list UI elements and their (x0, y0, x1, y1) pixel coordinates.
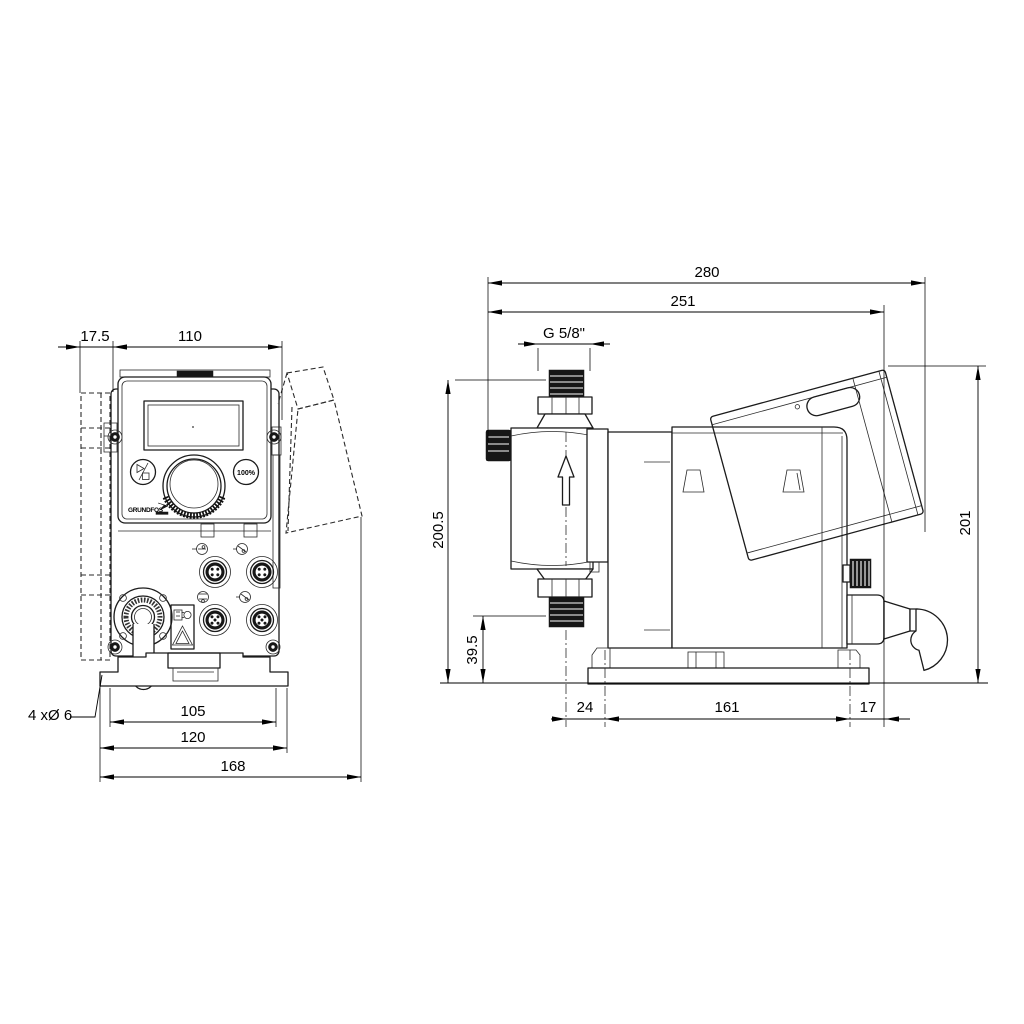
dosing-head (486, 370, 593, 627)
svg-text:251: 251 (670, 293, 695, 310)
svg-text:110: 110 (178, 328, 202, 345)
cover-handle-slot (805, 385, 862, 417)
mounting-plate-front (100, 653, 288, 686)
dim-total-width-168: 168 (100, 758, 361, 780)
motor-section (608, 432, 672, 648)
svg-text:G 5/8": G 5/8" (543, 325, 585, 342)
svg-text:120: 120 (180, 729, 205, 746)
dim-body-depth-251: 251 (488, 293, 884, 315)
dim-width-110: 110 (178, 328, 282, 350)
side-view (486, 370, 948, 684)
dim-rear-offset-17: 17 (860, 699, 877, 716)
wall-mounting-plate (81, 393, 110, 660)
dim-cover-height-201: 201 (957, 366, 981, 683)
pump-body-side (587, 427, 948, 670)
label-mounting-holes: 4 xØ 6 (28, 675, 102, 724)
dim-suction-height-39-5: 39.5 (464, 616, 486, 683)
dimensional-drawing: 100% GRUNDFOS (0, 0, 1024, 1024)
dim-thread-g58: G 5/8" (518, 325, 610, 347)
svg-text:201: 201 (957, 510, 974, 535)
main-housing (672, 427, 847, 648)
dim-plate-width-120: 120 (100, 729, 287, 751)
dosing-head-body (511, 428, 593, 569)
dim-hole-spacing-161: 161 (714, 699, 739, 716)
suction-valve (537, 569, 593, 627)
power-cable (847, 595, 948, 670)
front-view: 100% GRUNDFOS (81, 367, 362, 690)
svg-text:168: 168 (220, 758, 245, 775)
dim-hole-spacing-105: 105 (110, 703, 276, 725)
cover-flipped-front (278, 367, 362, 533)
capacity-button-label: 100% (237, 470, 256, 477)
svg-text:17.5: 17.5 (80, 328, 109, 345)
svg-text:39.5: 39.5 (464, 635, 481, 664)
dim-total-depth-280: 280 (488, 264, 925, 286)
vent-valve-knob[interactable] (486, 430, 511, 461)
svg-text:105: 105 (180, 703, 205, 720)
svg-text:200.5: 200.5 (430, 511, 447, 549)
panel-top-tab (177, 371, 213, 377)
discharge-valve (537, 370, 593, 428)
control-panel: 100% GRUNDFOS (118, 370, 271, 523)
base-plate (588, 648, 869, 684)
dim-front-offset-24: 24 (577, 699, 594, 716)
dim-height-200-5: 200.5 (430, 380, 451, 683)
dim-offset-17-5: 17.5 (58, 328, 282, 350)
svg-text:4 xØ 6: 4 xØ 6 (28, 707, 72, 724)
svg-text:280: 280 (694, 264, 719, 281)
head-adapter (587, 429, 608, 562)
